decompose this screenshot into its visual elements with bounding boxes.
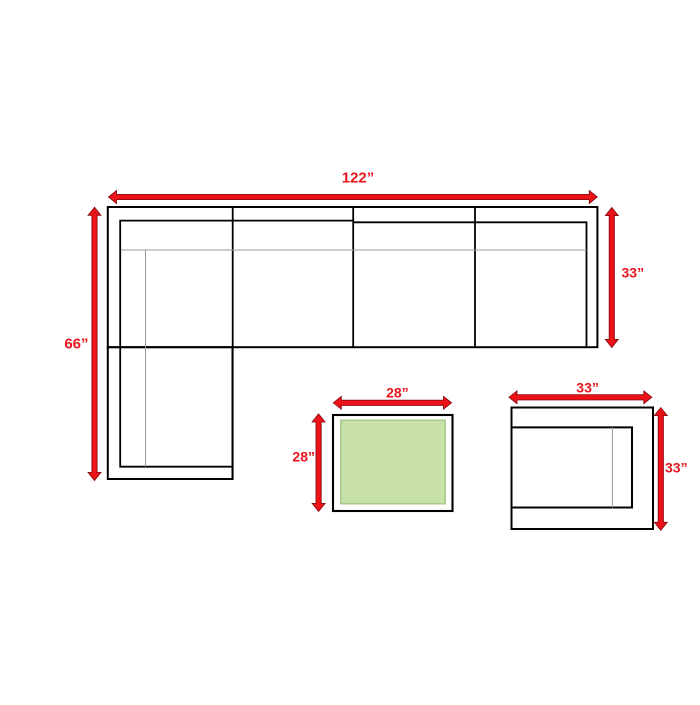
svg-text:33”: 33” xyxy=(622,264,645,280)
svg-text:66”: 66” xyxy=(64,336,88,353)
svg-text:28”: 28” xyxy=(386,384,409,400)
svg-text:28”: 28” xyxy=(292,449,315,465)
svg-text:33”: 33” xyxy=(665,459,688,475)
svg-text:33”: 33” xyxy=(576,380,599,396)
svg-text:122”: 122” xyxy=(342,170,375,187)
